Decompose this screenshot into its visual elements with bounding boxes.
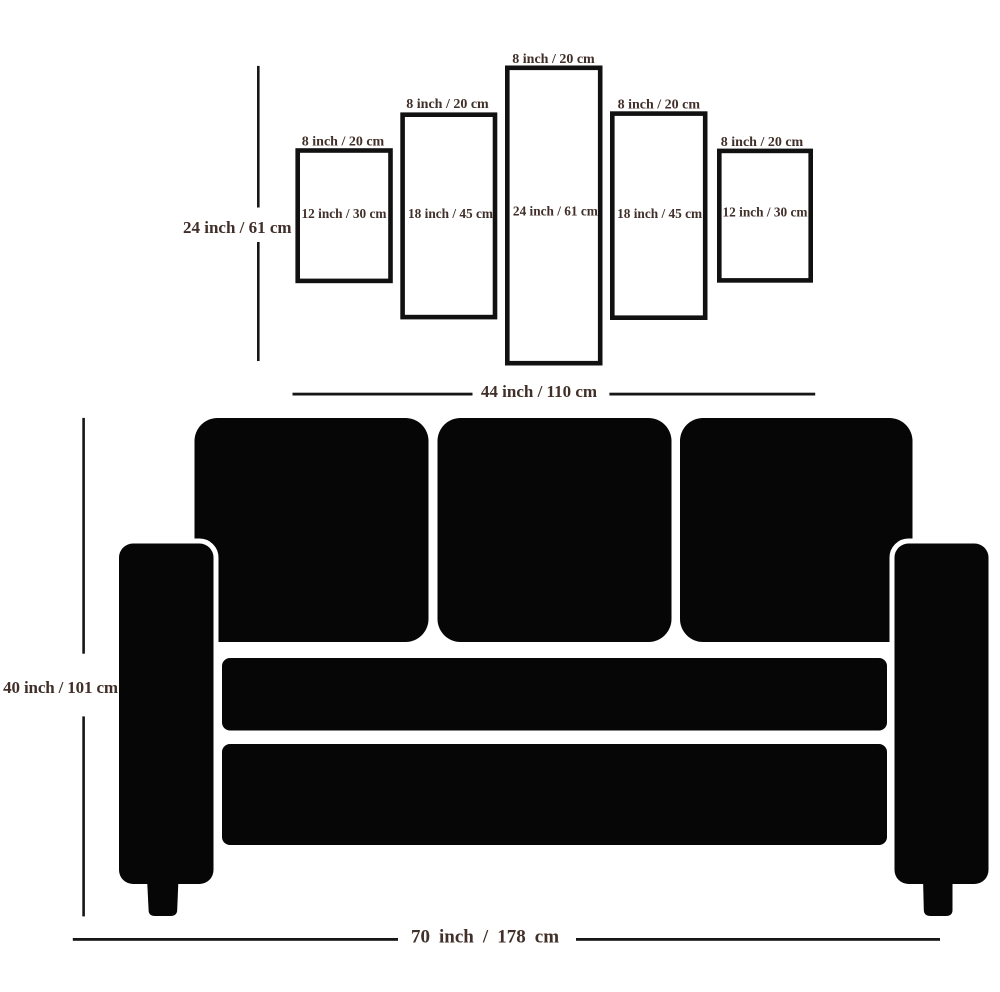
svg-text:18 inch / 45 cm: 18 inch / 45 cm <box>617 206 702 221</box>
svg-text:24 inch / 61 cm: 24 inch / 61 cm <box>513 204 598 219</box>
svg-text:8 inch / 20 cm: 8 inch / 20 cm <box>721 135 804 150</box>
svg-text:40 inch / 101 cm: 40 inch / 101 cm <box>3 678 118 697</box>
svg-text:12 inch / 30 cm: 12 inch / 30 cm <box>723 205 808 220</box>
svg-text:8 inch / 20 cm: 8 inch / 20 cm <box>618 98 701 113</box>
svg-text:8 inch / 20 cm: 8 inch / 20 cm <box>512 52 595 67</box>
svg-text:18 inch / 45 cm: 18 inch / 45 cm <box>408 206 493 221</box>
svg-text:8 inch / 20 cm: 8 inch / 20 cm <box>406 97 489 112</box>
svg-text:70 inch / 178 cm: 70 inch / 178 cm <box>411 926 559 947</box>
svg-text:8 inch / 20 cm: 8 inch / 20 cm <box>302 134 385 149</box>
svg-text:24 inch / 61 cm: 24 inch / 61 cm <box>183 218 292 237</box>
svg-text:12 inch / 30 cm: 12 inch / 30 cm <box>302 206 387 221</box>
svg-text:44 inch / 110 cm: 44 inch / 110 cm <box>481 382 597 401</box>
